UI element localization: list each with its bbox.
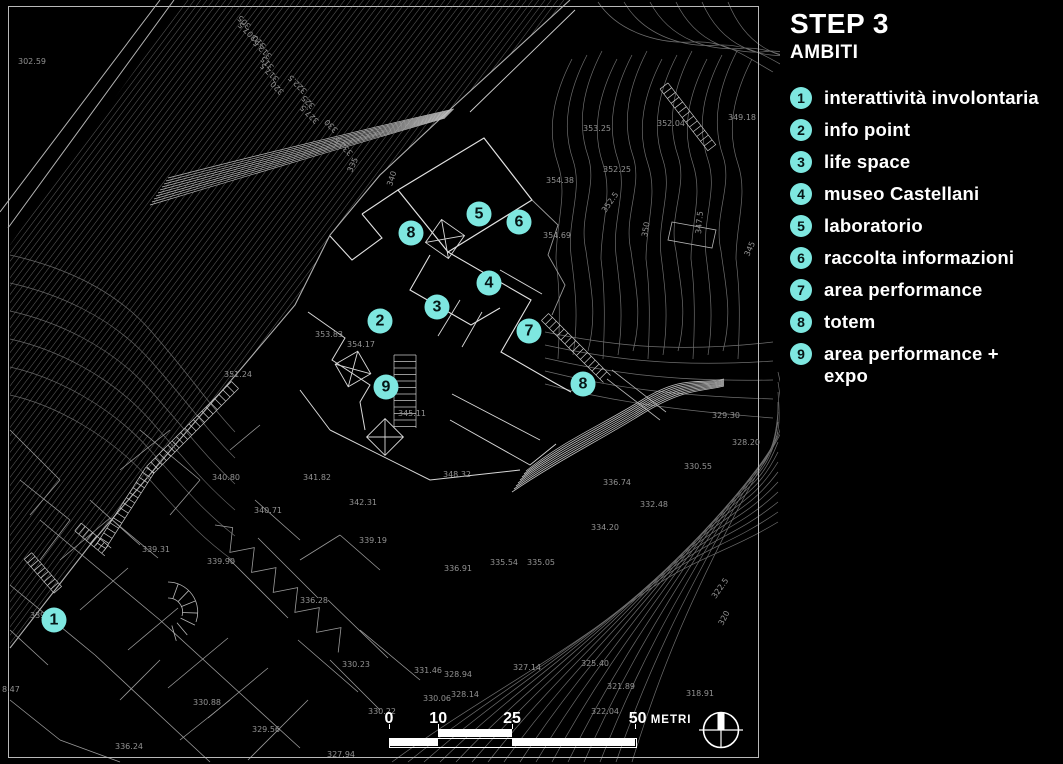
map-marker-8: 8: [399, 221, 424, 246]
map-marker-4: 4: [477, 271, 502, 296]
map-marker-1: 1: [42, 608, 67, 633]
street-line: [10, 630, 48, 665]
legend-item-8: 8totem: [790, 311, 1039, 333]
contour-line: [582, 51, 602, 351]
street-line: [300, 535, 340, 560]
slope-hatch: [10, 0, 570, 648]
legend-number-badge: 7: [790, 279, 812, 301]
contour-line: [728, 2, 780, 87]
legend-item-5: 5laboratorio: [790, 215, 1039, 237]
legend-item-1: 1interattività involontaria: [790, 87, 1039, 109]
contour-line: [598, 2, 773, 72]
elevation-label: 325.40: [581, 660, 609, 668]
contour-line: [676, 2, 780, 81]
legend-item-label: info point: [824, 119, 910, 141]
scale-segment: [438, 729, 512, 737]
contour-line: [687, 59, 707, 359]
elevation-label: 328.20: [732, 439, 760, 447]
contour-line: [657, 55, 677, 355]
legend-items: 1interattività involontaria2info point3l…: [790, 87, 1039, 397]
scale-tick-label: 50 METRI: [629, 710, 692, 728]
elevation-label: 336.91: [444, 565, 472, 573]
legend-number-badge: 1: [790, 87, 812, 109]
elevation-label: 354.69: [543, 232, 571, 240]
elevation-label: 327.94: [327, 751, 355, 759]
legend-item-label: totem: [824, 311, 875, 333]
elevation-label: 339.90: [207, 558, 235, 566]
legend-number-badge: 2: [790, 119, 812, 141]
map-marker-9: 9: [374, 375, 399, 400]
contour-line: [524, 380, 724, 474]
street-line: [230, 425, 260, 450]
legend-item-label: interattività involontaria: [824, 87, 1039, 109]
elevation-label: 352.25: [603, 166, 631, 174]
elevation-label: 332.48: [640, 501, 668, 509]
map-marker-2: 2: [368, 309, 393, 334]
elevation-label: 334.20: [591, 524, 619, 532]
legend-number-badge: 5: [790, 215, 812, 237]
legend-item-7: 7area performance: [790, 279, 1039, 301]
scale-tick: [389, 724, 390, 729]
elevation-label: 349.18: [728, 114, 756, 122]
contour-line: [612, 55, 632, 355]
elevation-label: 352.04: [657, 120, 685, 128]
scale-unit-label: METRI: [647, 714, 692, 726]
contour-line: [672, 51, 692, 351]
legend-number-badge: 6: [790, 247, 812, 269]
legend-item-label: area performance + expo: [824, 343, 999, 387]
elevation-label: 354.17: [347, 341, 375, 349]
page-subtitle: AMBITI: [790, 42, 858, 64]
road-pair: [607, 370, 666, 420]
elevation-label: 341.82: [303, 474, 331, 482]
elevation-label: 340.71: [254, 507, 282, 515]
legend-number-badge: 4: [790, 183, 812, 205]
contour-line: [702, 55, 722, 355]
legend-item-label: area performance: [824, 279, 982, 301]
contour-line: [627, 51, 647, 351]
small-structure: [668, 222, 716, 248]
legend-item-3: 3life space: [790, 151, 1039, 173]
contour-line: [650, 2, 780, 78]
page: 302.59353.25352.04349.18352.25354.38354.…: [0, 0, 1063, 764]
elevation-label: 330.06: [423, 695, 451, 703]
legend-number-badge: 3: [790, 151, 812, 173]
elevation-label: 318.91: [686, 690, 714, 698]
elevation-label: 339.19: [359, 537, 387, 545]
legend-item-9: 9area performance + expo: [790, 343, 1039, 387]
skylight-x-diamond: [367, 419, 404, 456]
contour-line: [732, 59, 752, 359]
street-line: [120, 660, 160, 700]
street-line: [228, 558, 288, 618]
legend-item-4: 4museo Castellani: [790, 183, 1039, 205]
elevation-label: 335.54: [490, 559, 518, 567]
fan-stairs: [168, 582, 198, 641]
skylight-x-box: [426, 220, 465, 259]
legend-item-6: 6raccolta informazioni: [790, 247, 1039, 269]
elevation-label: 331.46: [414, 667, 442, 675]
contour-line: [514, 385, 724, 489]
legend-panel: STEP 3 AMBITI 1interattività involontari…: [780, 0, 1063, 764]
elevation-label: 328.14: [451, 691, 479, 699]
street-line: [360, 630, 420, 680]
elevation-label: 321.89: [607, 683, 635, 691]
street-line: [258, 538, 318, 598]
elevation-label: 342.31: [349, 499, 377, 507]
building-rooms-south: [450, 394, 556, 465]
building-south-edge: [300, 390, 520, 480]
scale-tick: [635, 724, 636, 729]
elevation-label: 329.30: [712, 412, 740, 420]
street-line: [10, 700, 60, 740]
elevation-label: 348.32: [443, 471, 471, 479]
street-line: [168, 638, 228, 688]
elevation-label: 336.74: [603, 479, 631, 487]
elevation-label: 328.94: [444, 671, 472, 679]
street-line: [80, 568, 128, 610]
map-marker-8: 8: [571, 372, 596, 397]
elevation-label: 336.24: [115, 743, 143, 751]
contour-line: [552, 59, 572, 359]
legend-number-badge: 9: [790, 343, 812, 365]
map-marker-7: 7: [517, 319, 542, 344]
scale-tick: [512, 724, 513, 729]
page-title: STEP 3: [790, 8, 889, 40]
legend-item-label: raccolta informazioni: [824, 247, 1014, 269]
map-marker-6: 6: [507, 210, 532, 235]
elevation-label: 354.38: [546, 177, 574, 185]
contour-line: [717, 51, 737, 351]
contour-line: [512, 386, 724, 492]
elevation-label: 335.05: [527, 559, 555, 567]
street-line: [328, 600, 388, 658]
elevation-label: 339.31: [142, 546, 170, 554]
street-line: [170, 480, 200, 515]
sawtooth-roofs: [215, 525, 341, 652]
elevation-label: 302.59: [18, 58, 46, 66]
contour-line: [567, 55, 587, 355]
legend-number-badge: 8: [790, 311, 812, 333]
street-line: [95, 655, 210, 762]
elevation-label: 353.25: [583, 125, 611, 133]
legend-item-label: life space: [824, 151, 910, 173]
scale-segment: [512, 738, 635, 746]
elevation-label: 330.55: [684, 463, 712, 471]
elevation-label: 322.04: [591, 708, 619, 716]
map-marker-3: 3: [425, 295, 450, 320]
site-plan-map: 302.59353.25352.04349.18352.25354.38354.…: [0, 0, 780, 764]
scale-segment: [389, 738, 438, 746]
north-arrow-icon: [695, 704, 747, 756]
elevation-label: 329.56: [252, 726, 280, 734]
elevation-label: 330.88: [193, 699, 221, 707]
elevation-label: 330.23: [342, 661, 370, 669]
elevation-label: 8.47: [2, 686, 20, 694]
elevation-label: 351.24: [224, 371, 252, 379]
map-marker-5: 5: [467, 202, 492, 227]
legend-item-2: 2info point: [790, 119, 1039, 141]
elevation-label: 353.83: [315, 331, 343, 339]
elevation-label: 327.14: [513, 664, 541, 672]
legend-item-label: laboratorio: [824, 215, 923, 237]
elevation-label: 336.28: [300, 597, 328, 605]
street-line: [60, 740, 120, 762]
contour-line: [600, 392, 779, 762]
elevation-label: 340.80: [212, 474, 240, 482]
elevation-label: 345.11: [398, 410, 426, 418]
legend-item-label: museo Castellani: [824, 183, 979, 205]
contour-line: [642, 59, 662, 359]
contour-line: [624, 2, 780, 75]
